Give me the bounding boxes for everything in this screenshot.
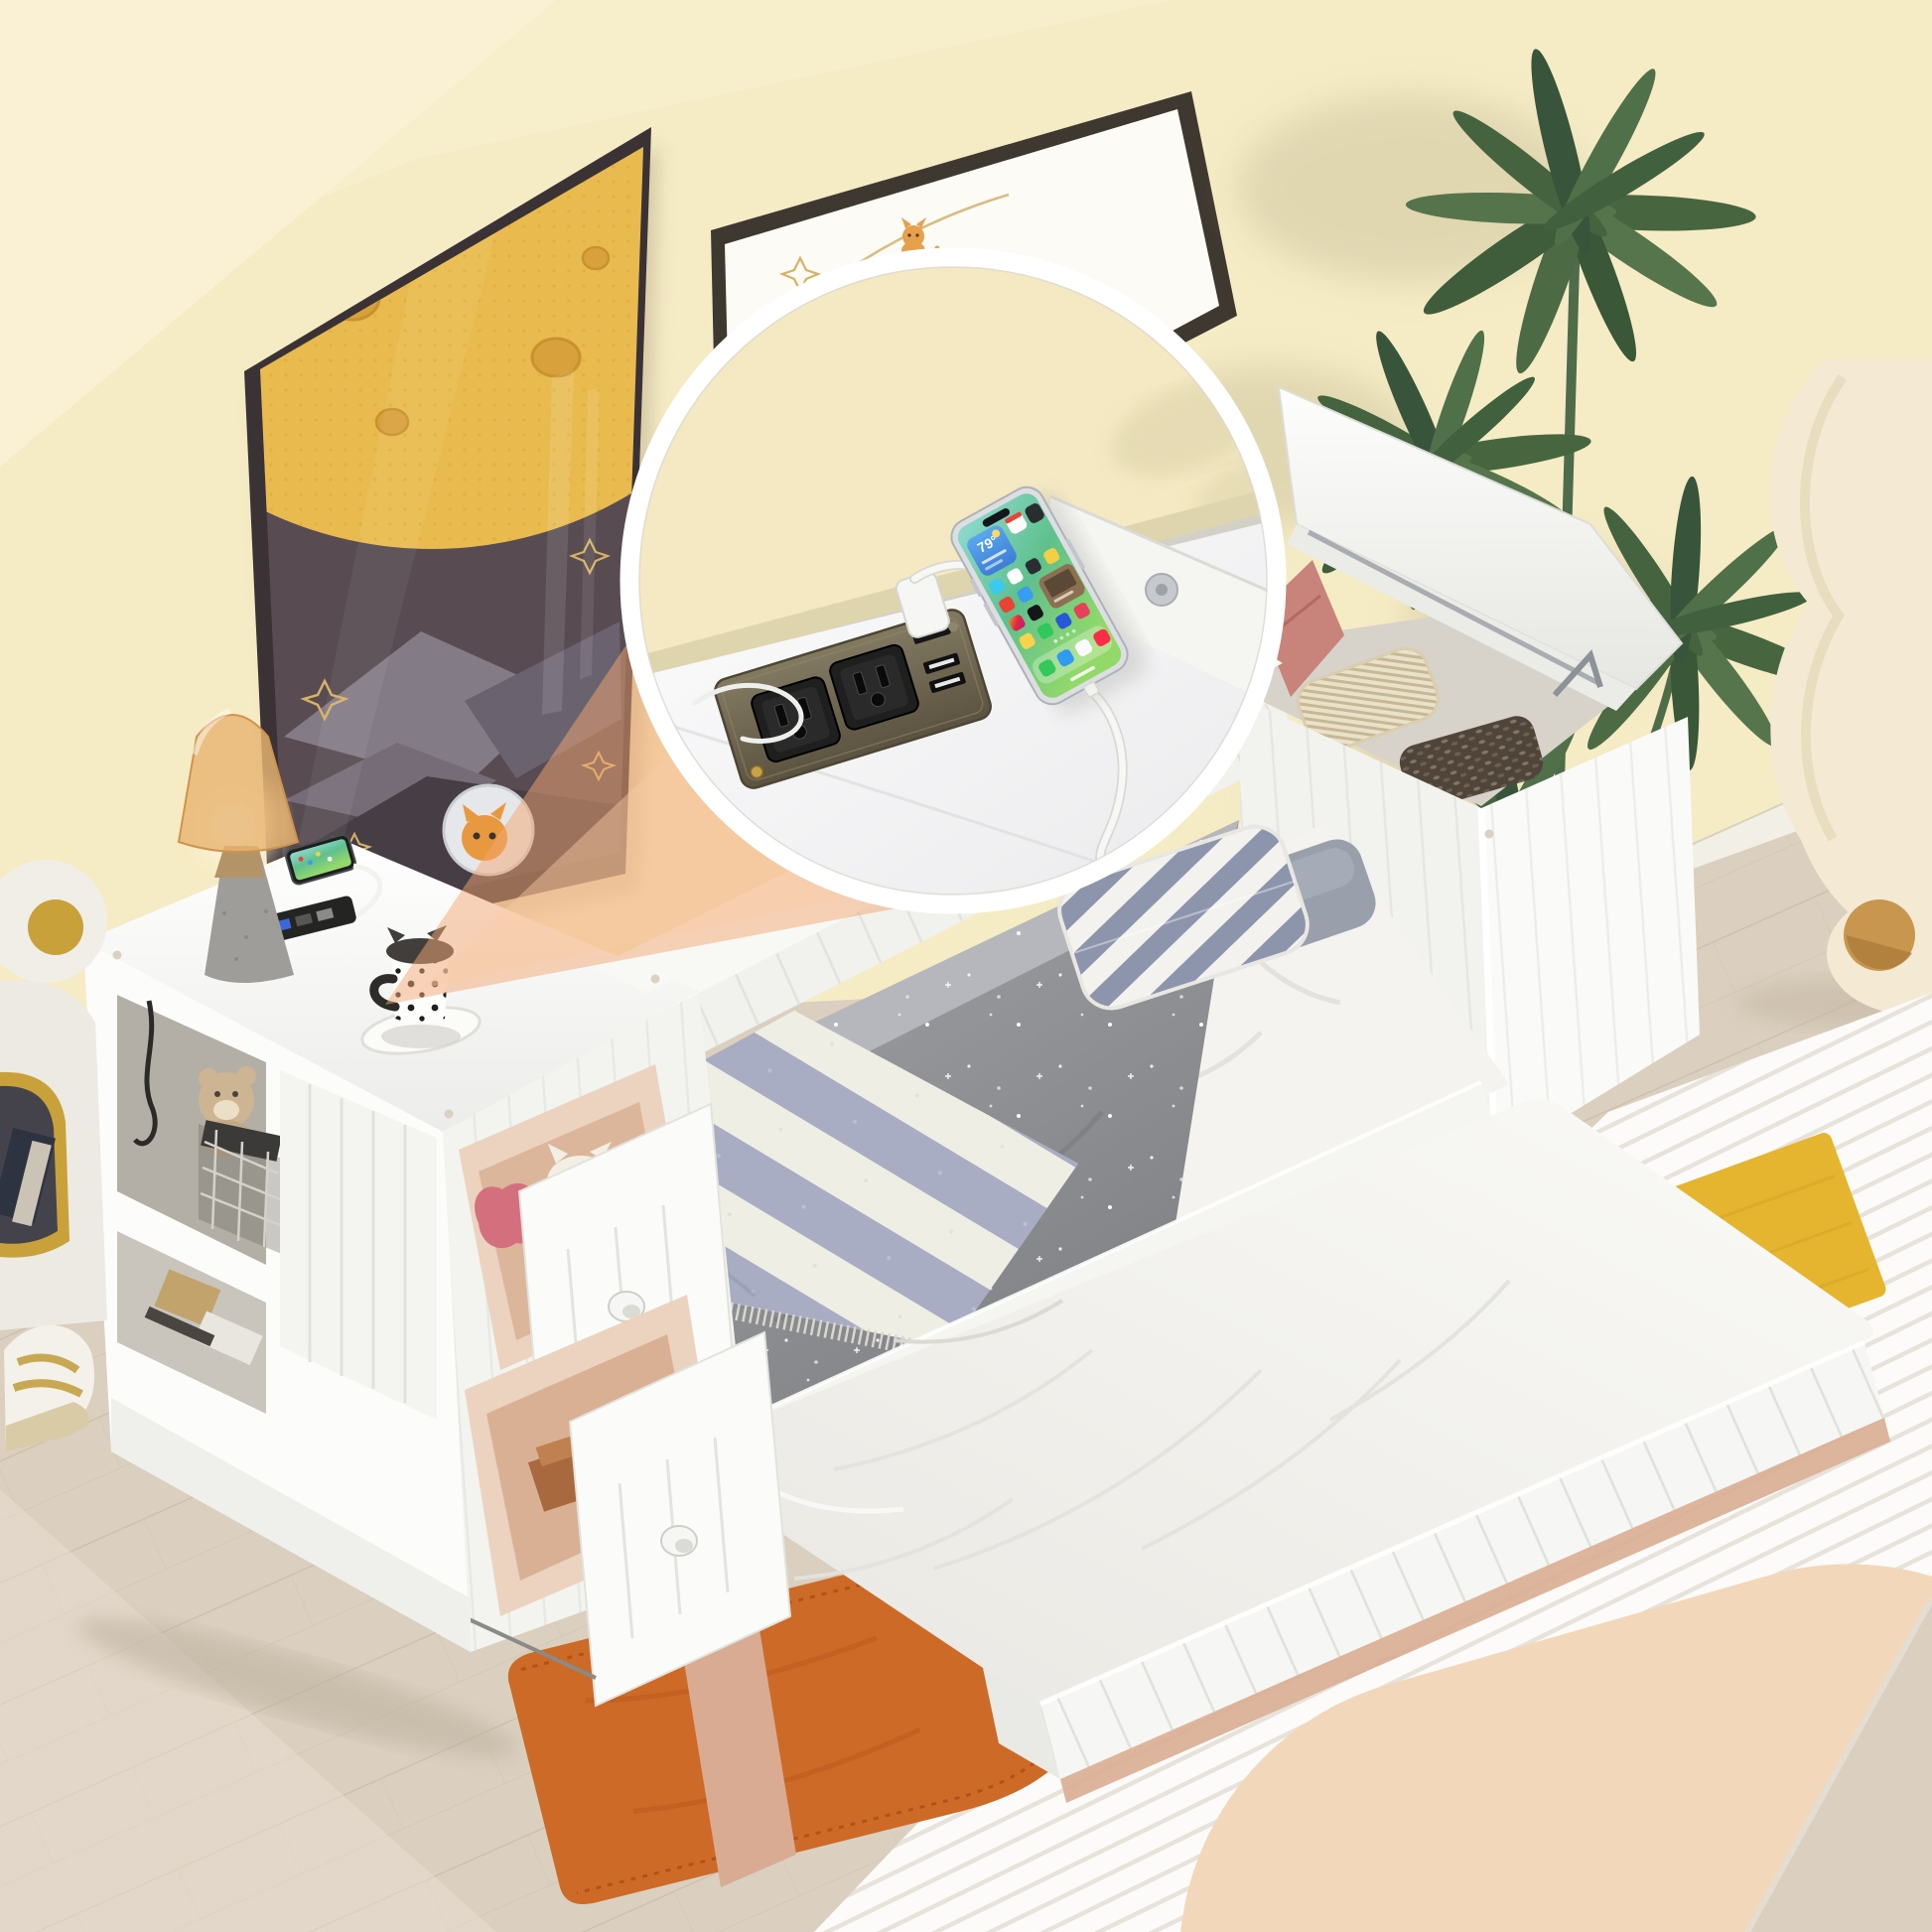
scene-svg: 79° [0,0,1932,1932]
robot-shelf [0,860,107,1330]
robot-ear-gold [28,899,83,955]
moon-crater [583,247,609,269]
bedroom-product-photo: 79° [0,0,1932,1932]
